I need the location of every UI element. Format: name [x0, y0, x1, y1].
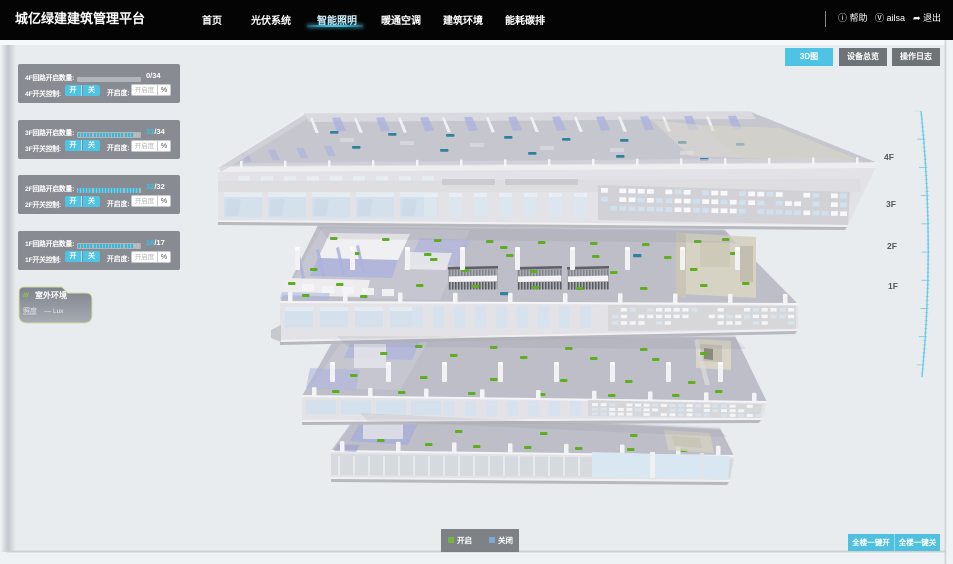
- svg-text:—: —: [44, 308, 51, 315]
- svg-text:照度: 照度: [23, 306, 37, 315]
- svg-text:室外环境: 室外环境: [35, 290, 67, 300]
- svg-text:Lux: Lux: [53, 308, 64, 315]
